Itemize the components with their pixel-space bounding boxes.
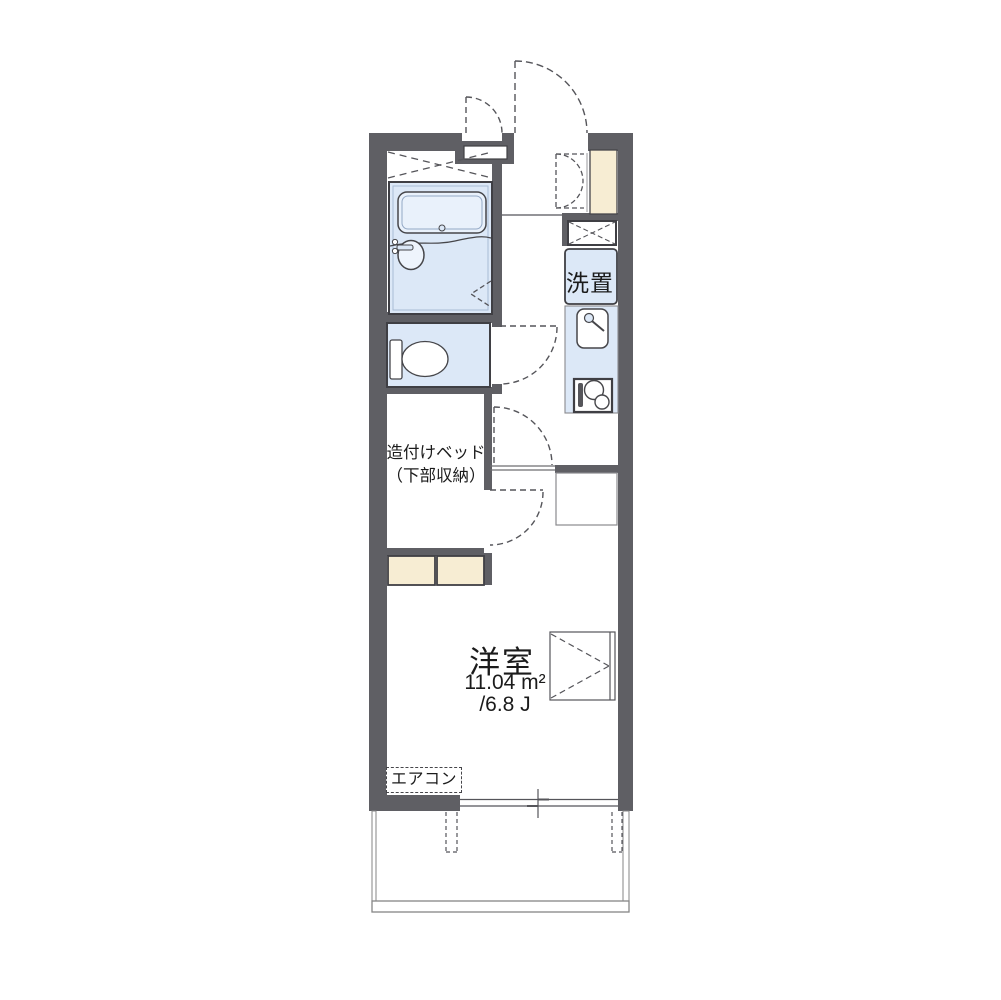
transom-line (490, 466, 555, 470)
sliding-window (460, 789, 618, 818)
washer-place-label: 洗置 (562, 264, 618, 298)
room-door-swing (494, 407, 552, 465)
x-hatch-box (568, 221, 616, 245)
built-in-bed-line2: （下部収納） (374, 465, 498, 488)
western-room-area-tatami: /6.8 J (445, 693, 565, 717)
bed-storage (388, 556, 484, 585)
cabinet-door-swing (556, 154, 584, 208)
shoe-cabinet (587, 150, 617, 214)
hall-closet (556, 473, 617, 525)
balcony-partition-marks (446, 812, 622, 852)
air-conditioner-label: エアコン (391, 771, 457, 788)
bathtub (398, 192, 486, 233)
toilet-door-swing (500, 326, 557, 384)
toilet (390, 340, 448, 379)
storage-door-swing (466, 97, 502, 133)
kitchen-counter (565, 306, 618, 413)
stove (574, 379, 612, 412)
air-conditioner-box: エアコン (386, 767, 462, 793)
entry-door-swing (515, 61, 587, 133)
bedroom-door-swing (490, 490, 543, 545)
floor-plan: 造付けベッド （下部収納） 洗置 洋室 11.04 m² /6.8 J エアコン (0, 0, 1001, 1000)
balcony (372, 811, 629, 912)
kitchen-sink (577, 309, 608, 348)
floor-plan-linework (0, 0, 1001, 1000)
built-in-bed-label: 造付けベッド （下部収納） (374, 442, 498, 488)
western-room-area-sqm: 11.04 m² (445, 671, 565, 695)
built-in-bed-line1: 造付けベッド (374, 442, 498, 465)
toilet-room (387, 323, 490, 387)
bath-unit (389, 182, 492, 314)
